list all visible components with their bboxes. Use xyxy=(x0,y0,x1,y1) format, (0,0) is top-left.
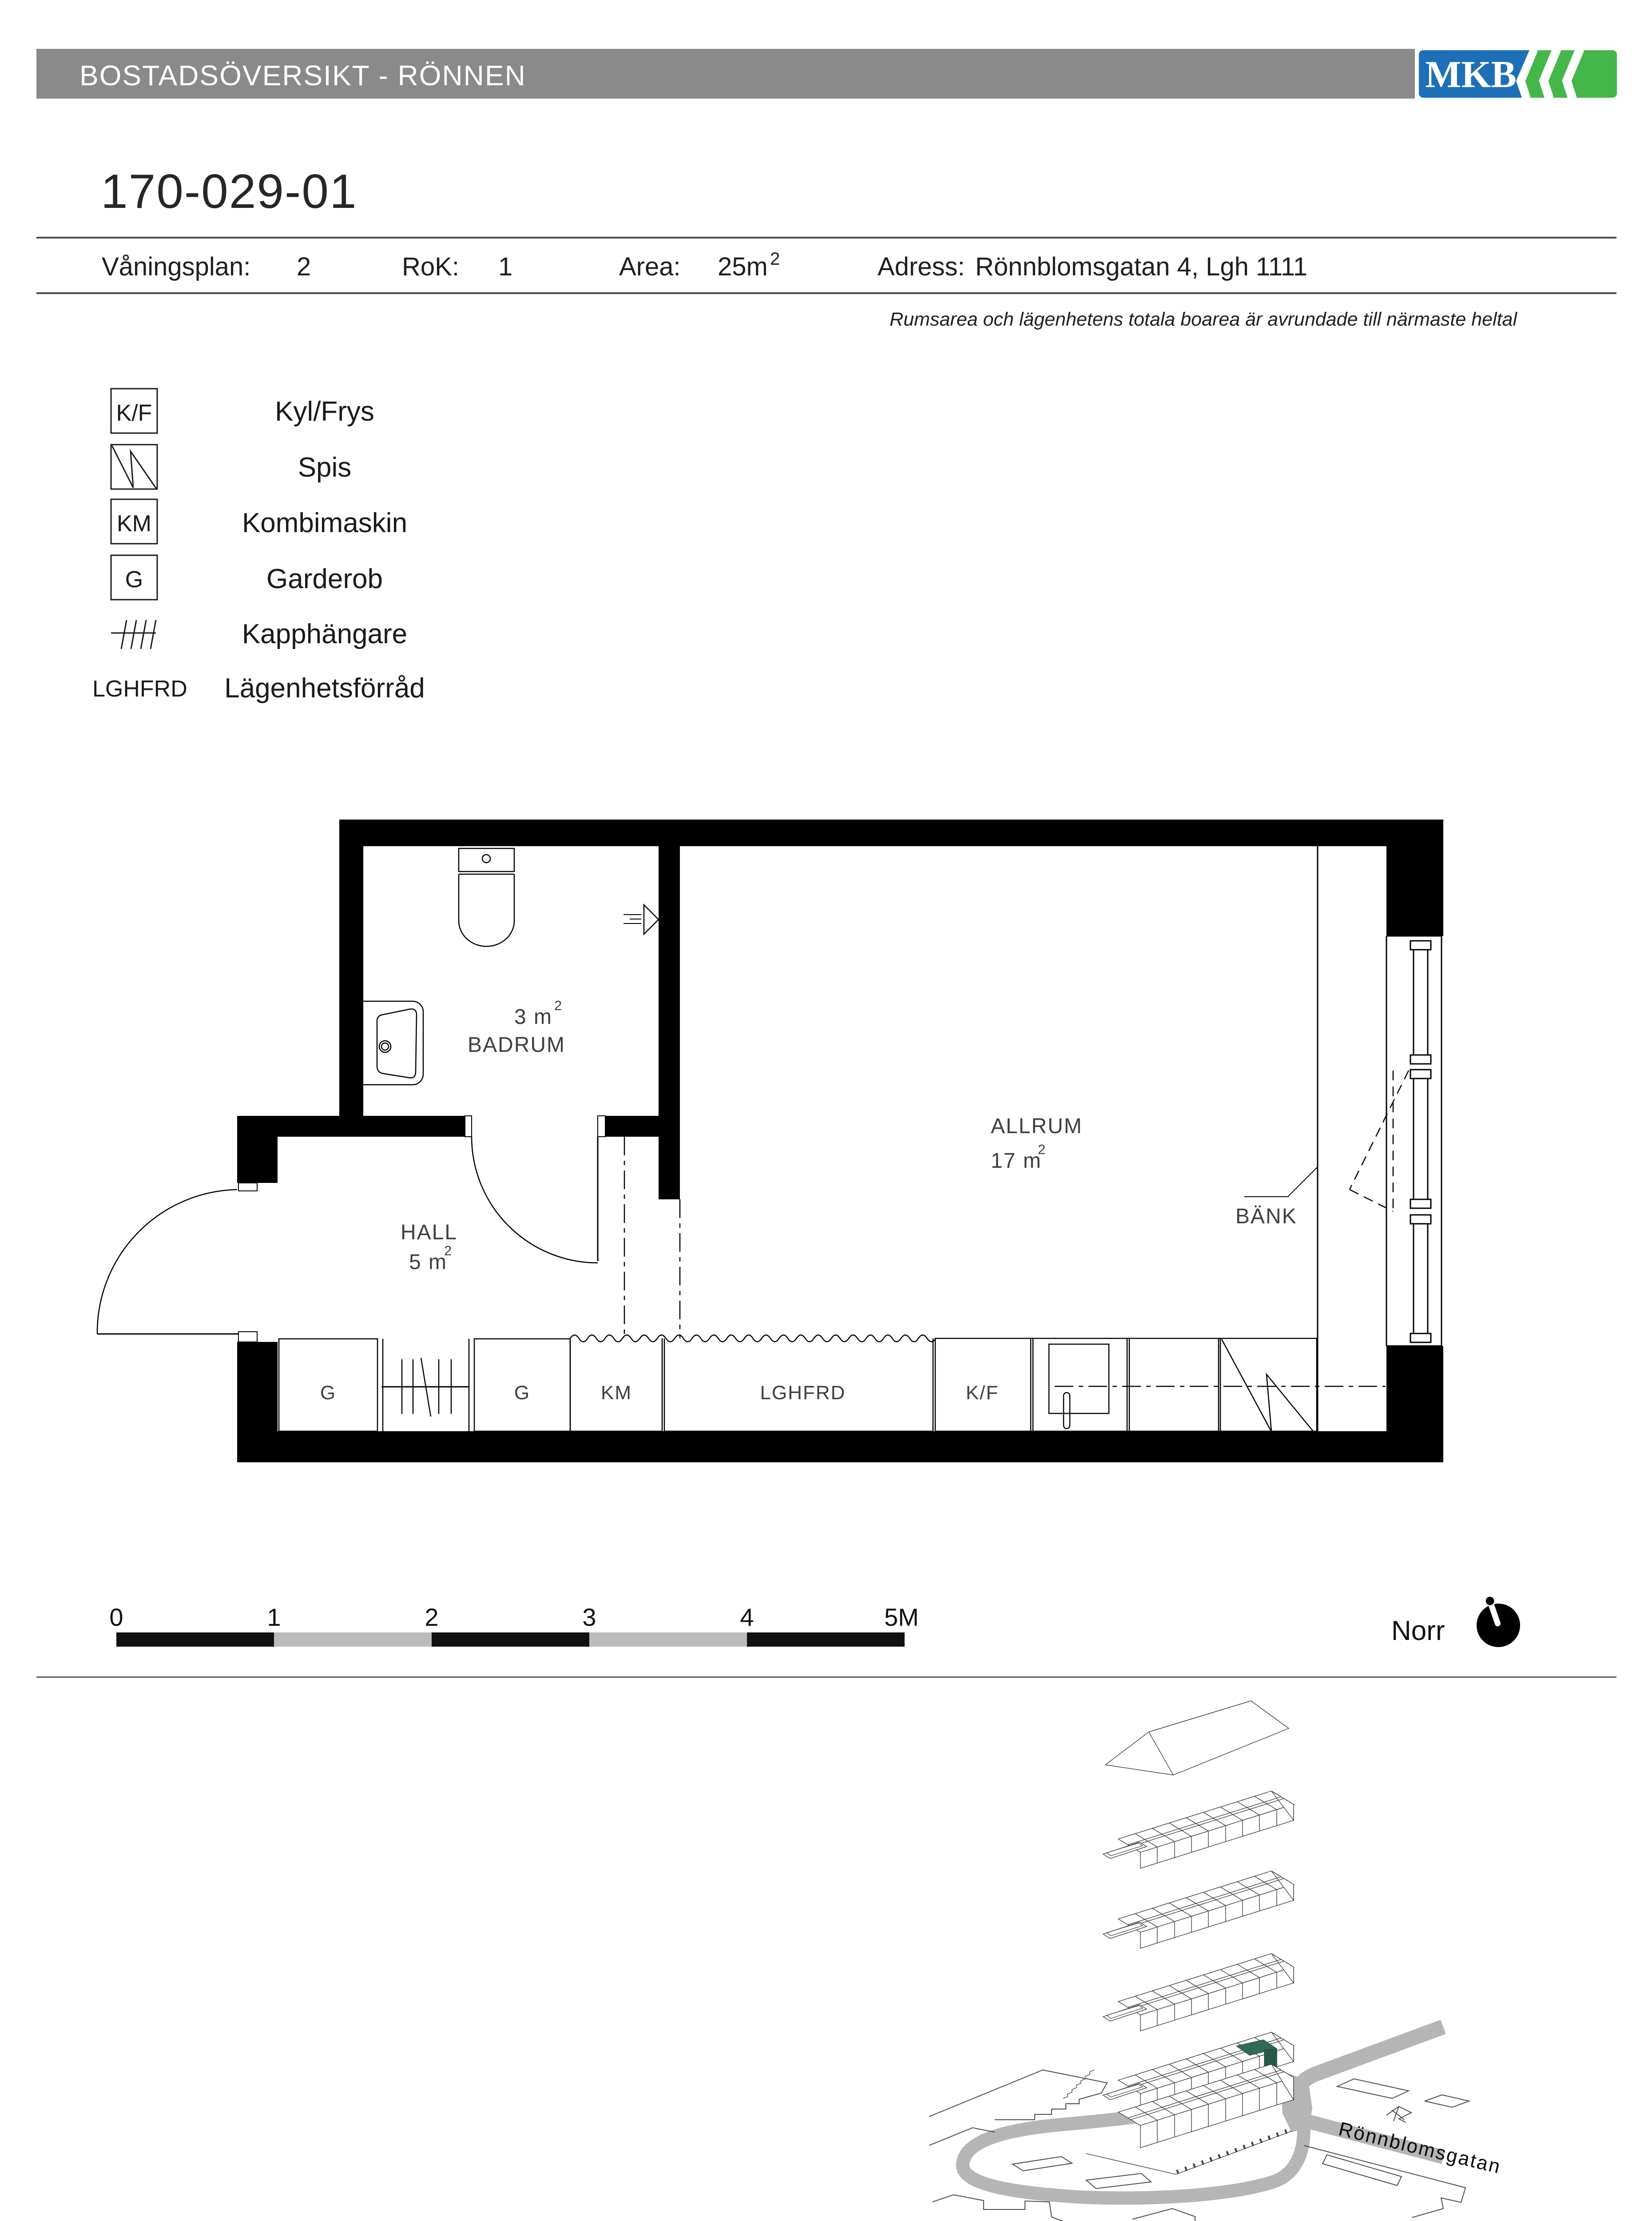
svg-text:Kombimaskin: Kombimaskin xyxy=(242,508,407,538)
svg-text:HALL: HALL xyxy=(401,1221,457,1244)
svg-text:RoK:: RoK: xyxy=(402,252,459,281)
svg-text:Våningsplan:: Våningsplan: xyxy=(102,252,250,281)
svg-text:Spis: Spis xyxy=(298,452,352,483)
svg-text:G: G xyxy=(514,1382,530,1404)
svg-text:5 m: 5 m xyxy=(409,1250,447,1274)
svg-text:4: 4 xyxy=(740,1603,754,1631)
svg-text:Garderob: Garderob xyxy=(266,564,383,594)
svg-text:G: G xyxy=(125,567,143,593)
svg-text:K/F: K/F xyxy=(116,400,152,426)
svg-text:BÄNK: BÄNK xyxy=(1235,1205,1297,1228)
svg-text:Rumsarea och lägenhetens total: Rumsarea och lägenhetens totala boarea ä… xyxy=(890,309,1517,330)
svg-text:ALLRUM: ALLRUM xyxy=(991,1114,1083,1138)
svg-text:MKB: MKB xyxy=(1425,53,1516,96)
svg-text:2: 2 xyxy=(554,998,562,1013)
svg-text:5M: 5M xyxy=(884,1603,919,1631)
svg-text:Lägenhetsförråd: Lägenhetsförråd xyxy=(224,673,425,704)
svg-text:G: G xyxy=(320,1382,336,1404)
svg-text:LGHFRD: LGHFRD xyxy=(92,676,187,702)
svg-text:Kapphängare: Kapphängare xyxy=(242,619,407,649)
svg-text:KM: KM xyxy=(601,1382,632,1404)
svg-text:25m: 25m xyxy=(718,252,768,281)
svg-text:K/F: K/F xyxy=(966,1382,999,1404)
svg-text:LGHFRD: LGHFRD xyxy=(760,1382,846,1404)
svg-text:2: 2 xyxy=(1038,1142,1046,1157)
svg-text:2: 2 xyxy=(297,252,311,281)
svg-text:Rönnblomsgatan: Rönnblomsgatan xyxy=(1337,2118,1504,2178)
svg-text:Kyl/Frys: Kyl/Frys xyxy=(275,396,374,427)
svg-text:Area:: Area: xyxy=(619,252,681,281)
svg-text:2: 2 xyxy=(770,249,780,269)
svg-text:3 m: 3 m xyxy=(514,1005,552,1029)
svg-text:Norr: Norr xyxy=(1391,1616,1445,1646)
svg-text:BOSTADSÖVERSIKT - RÖNNEN: BOSTADSÖVERSIKT - RÖNNEN xyxy=(79,60,526,92)
svg-text:Adress:: Adress: xyxy=(878,252,965,281)
svg-text:170-029-01: 170-029-01 xyxy=(101,164,357,219)
svg-text:1: 1 xyxy=(267,1603,281,1631)
svg-text:1: 1 xyxy=(498,252,512,281)
svg-text:BADRUM: BADRUM xyxy=(468,1033,565,1057)
svg-text:17 m: 17 m xyxy=(991,1149,1042,1173)
svg-text:2: 2 xyxy=(444,1243,452,1258)
svg-text:Rönnblomsgatan 4, Lgh 1111: Rönnblomsgatan 4, Lgh 1111 xyxy=(975,252,1307,281)
svg-text:KM: KM xyxy=(117,511,151,537)
svg-text:0: 0 xyxy=(109,1603,123,1631)
svg-text:3: 3 xyxy=(582,1603,596,1631)
svg-text:2: 2 xyxy=(425,1603,438,1631)
